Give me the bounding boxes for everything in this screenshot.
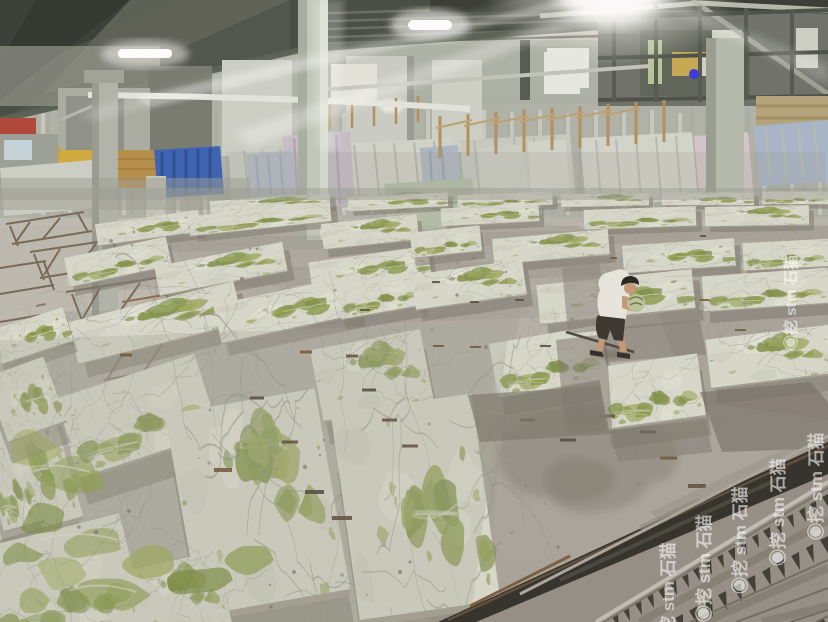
- svg-text:◉挖 stm 石猫: ◉挖 stm 石猫: [730, 486, 750, 594]
- svg-text:◉挖 stm 石猫: ◉挖 stm 石猫: [694, 514, 714, 622]
- svg-text:◉挖 stm 石猫: ◉挖 stm 石猫: [782, 255, 800, 350]
- svg-text:◉挖 stm 石猫: ◉挖 stm 石猫: [658, 542, 678, 622]
- svg-text:◉挖 stm 石猫: ◉挖 stm 石猫: [768, 458, 788, 566]
- svg-text:◉挖 stm 石猫: ◉挖 stm 石猫: [806, 432, 826, 540]
